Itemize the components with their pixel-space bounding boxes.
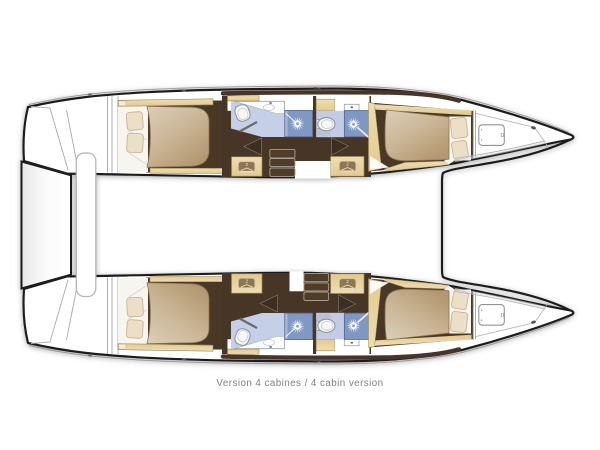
svg-text:Version 4 cabines / 4 cabin ve: Version 4 cabines / 4 cabin version [216, 378, 383, 389]
